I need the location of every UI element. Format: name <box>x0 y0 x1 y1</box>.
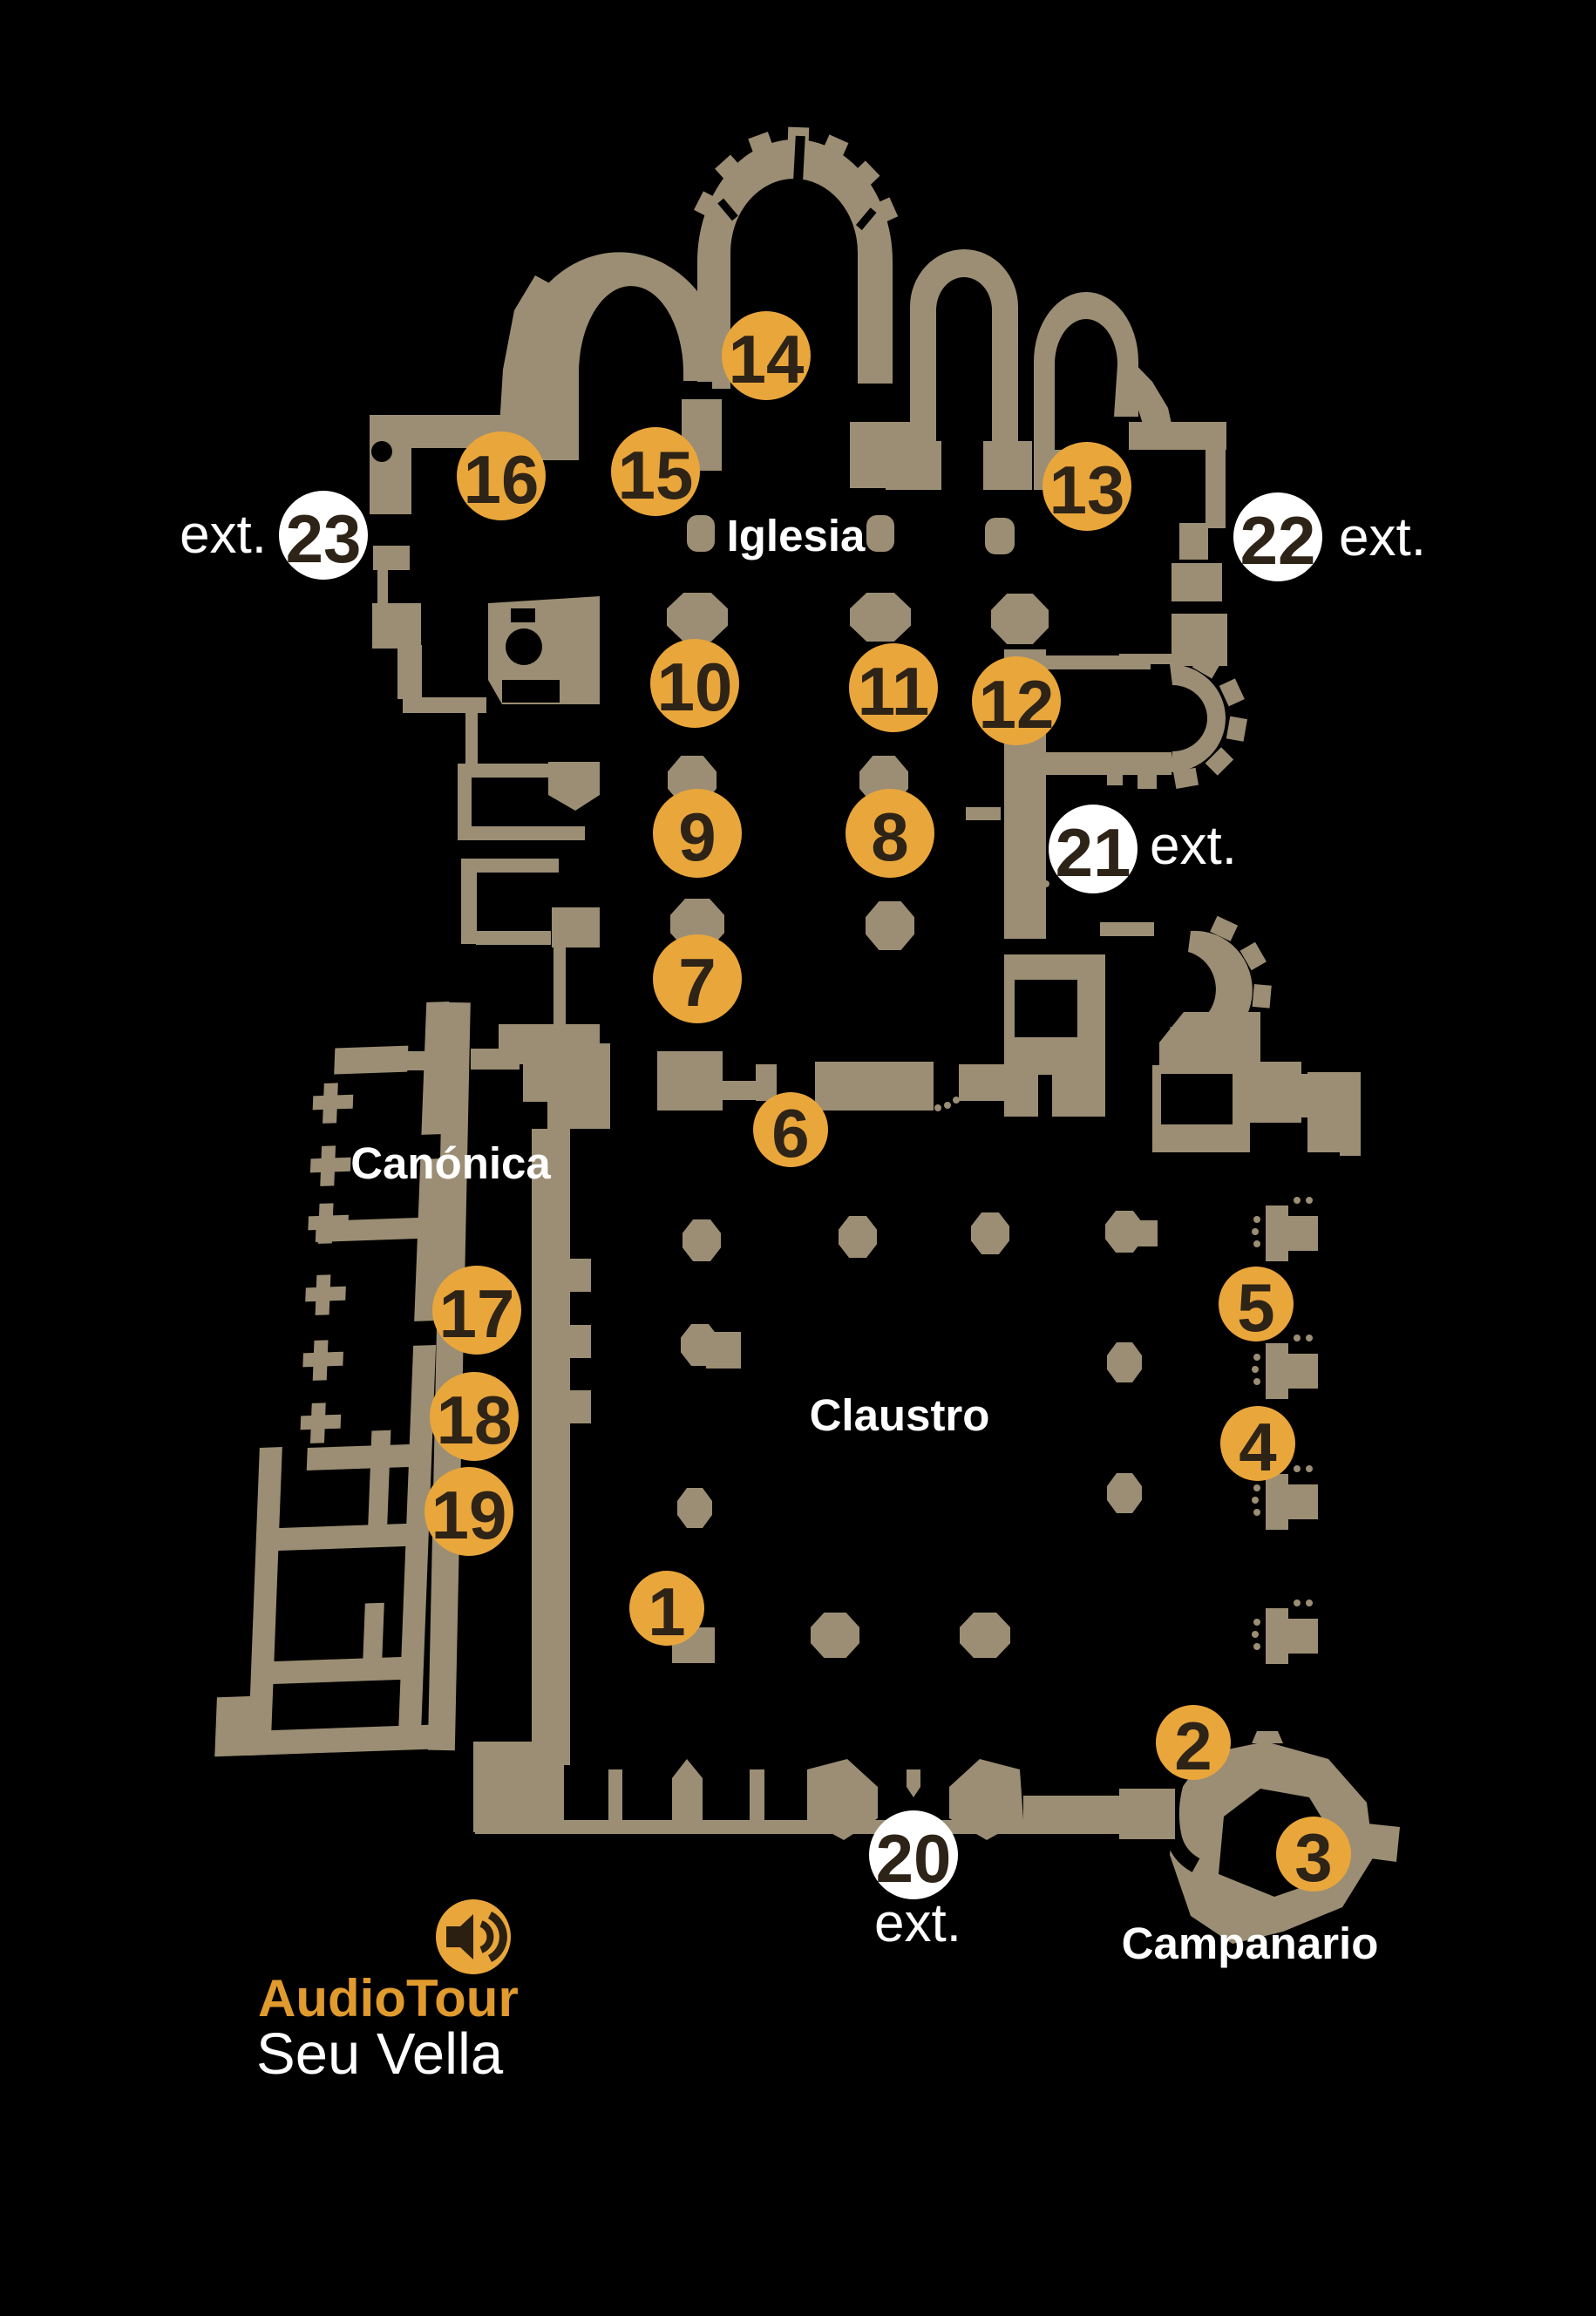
svg-text:Campanario: Campanario <box>1122 1919 1379 1968</box>
svg-text:11: 11 <box>858 653 929 730</box>
svg-text:19: 19 <box>431 1477 507 1553</box>
svg-text:14: 14 <box>729 321 805 397</box>
svg-text:ext.: ext. <box>1150 816 1237 876</box>
svg-text:17: 17 <box>439 1275 515 1352</box>
svg-text:Iglesia: Iglesia <box>727 511 866 560</box>
svg-text:5: 5 <box>1237 1269 1274 1346</box>
svg-text:23: 23 <box>286 500 362 577</box>
svg-text:12: 12 <box>979 666 1055 743</box>
svg-text:9: 9 <box>678 798 716 875</box>
svg-text:4: 4 <box>1239 1409 1276 1485</box>
svg-text:13: 13 <box>1049 452 1125 528</box>
svg-text:18: 18 <box>437 1382 513 1458</box>
svg-text:ext.: ext. <box>180 505 267 565</box>
svg-text:AudioTour: AudioTour <box>258 1969 519 2027</box>
svg-text:8: 8 <box>871 798 908 875</box>
svg-text:ext.: ext. <box>1339 507 1426 567</box>
svg-text:22: 22 <box>1240 502 1316 579</box>
svg-text:Seu Vella: Seu Vella <box>256 2021 504 2087</box>
svg-text:21: 21 <box>1056 814 1131 891</box>
svg-text:16: 16 <box>464 441 540 518</box>
svg-text:2: 2 <box>1174 1708 1212 1784</box>
svg-text:10: 10 <box>657 649 733 725</box>
svg-text:1: 1 <box>648 1573 685 1650</box>
svg-text:Claustro: Claustro <box>810 1390 990 1440</box>
svg-text:7: 7 <box>678 944 716 1021</box>
svg-text:20: 20 <box>876 1820 952 1897</box>
svg-text:ext.: ext. <box>874 1893 961 1953</box>
svg-text:6: 6 <box>771 1095 809 1172</box>
svg-text:15: 15 <box>618 437 694 513</box>
svg-text:3: 3 <box>1294 1819 1332 1896</box>
svg-text:Canónica: Canónica <box>350 1138 551 1188</box>
